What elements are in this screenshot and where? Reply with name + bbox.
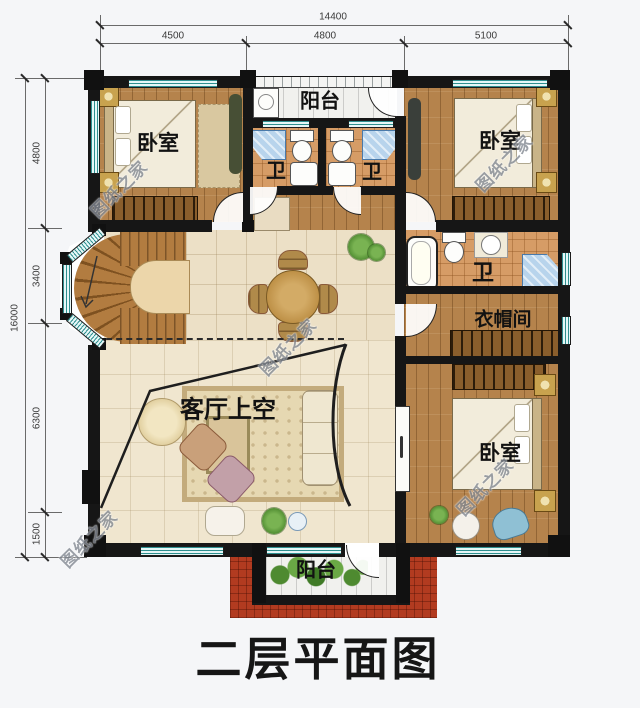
toilet-right [332,140,352,162]
dim-left-seg3: 6300 [32,407,43,429]
window-right-bath [561,252,571,286]
round-side-table [138,398,186,446]
dim-left-total: 16000 [10,304,21,332]
room-label-cloakroom: 衣帽间 [474,305,531,332]
balcony-front-wall [252,595,410,605]
wall-left-pier [82,470,100,504]
bench-seat [205,506,245,536]
corner-pillar [240,70,256,88]
sink-right [328,162,356,186]
dining-chair [248,284,268,314]
room-label-bathroom-right: 卫 [362,156,382,185]
dim-line [100,25,568,26]
wall-bath-bottom [243,186,250,195]
dining-chair [278,250,308,270]
toilet-left [292,140,312,162]
corner-pillar [84,70,104,90]
door-handle [400,436,403,458]
wardrobe-top-right [452,196,550,222]
toilet-master [444,241,464,263]
dim-top-seg2: 4800 [314,31,336,42]
bathtub-inner [411,241,431,285]
wall-bath-cloak [402,286,570,294]
dim-top-total: 14400 [319,12,347,23]
dim-line [100,43,568,44]
pillow [115,106,131,134]
floorplan-canvas: 14400 4500 4800 5100 16000 4800 3400 630… [0,0,640,708]
dim-left-seg4: 1500 [32,523,43,545]
dim-line [45,78,46,557]
corner-pillar [392,70,408,88]
balcony-pillar-right [396,543,410,603]
dim-top-seg1: 4500 [162,31,184,42]
bedroom-plant [430,506,448,524]
window-bath-left [262,120,310,128]
standing-mirror-decor [408,98,421,180]
wall-cloak-bedroom [402,356,570,364]
window-right-cloak [561,316,571,345]
balcony-pillar-left [252,543,266,603]
window-top-right [452,79,548,88]
cloakroom-wardrobe [450,330,560,359]
window-bottom-bedroom [455,546,522,556]
wall-v3-mid [395,336,406,406]
sink-master [481,235,501,255]
room-label-bedroom-top-left: 卧室 [137,127,179,157]
wardrobe-bottom-right [452,364,546,390]
sink-left [290,162,318,186]
dim-left-seg2: 3400 [32,265,43,287]
dining-table [266,270,320,324]
room-label-bathroom-left: 卫 [266,155,286,184]
window-bath-right [348,120,394,128]
wall-bath-bottom [360,186,395,195]
living-plant [262,508,286,534]
corner-pillar [548,535,570,557]
page-title: 二层平面图 [196,623,441,689]
room-label-balcony-bottom: 阳台 [296,554,336,583]
wall-v3-lower [395,490,406,543]
decor-pot [288,512,307,531]
window-left-bedroom [90,100,100,174]
wall-bedroomTR-bottom [395,220,406,232]
window-bottom-living [140,546,224,556]
wall-bedroomTR-bottom [436,220,570,232]
wall-bath-divider [318,126,326,188]
dim-top-seg3: 5100 [475,31,497,42]
wall-bedroomTL-bottom [88,220,212,232]
washing-machine-drum [258,94,274,110]
wall-bath-bottom [277,186,333,195]
dim-line [25,78,26,557]
nightstand [534,490,556,512]
window-top-left [128,79,218,88]
corner-pillar [550,70,570,90]
nightstand [534,374,556,396]
room-label-living-void: 客厅上空 [180,390,276,425]
bed-headboard [532,398,542,490]
stair-landing [130,260,190,314]
wall-v2 [395,116,406,220]
tall-plant-decor [229,94,242,174]
hall-plant-small [368,244,385,261]
sofa [302,390,338,486]
bay-window-middle [62,264,72,314]
dining-chair [318,284,338,314]
dim-left-seg1: 4800 [32,142,43,164]
wall-junction [242,220,254,232]
wardrobe-top-left [112,196,198,222]
room-label-bathroom-master: 卫 [472,255,494,287]
nightstand [536,172,557,193]
pillow [514,404,530,432]
room-label-balcony-top: 阳台 [300,85,340,114]
